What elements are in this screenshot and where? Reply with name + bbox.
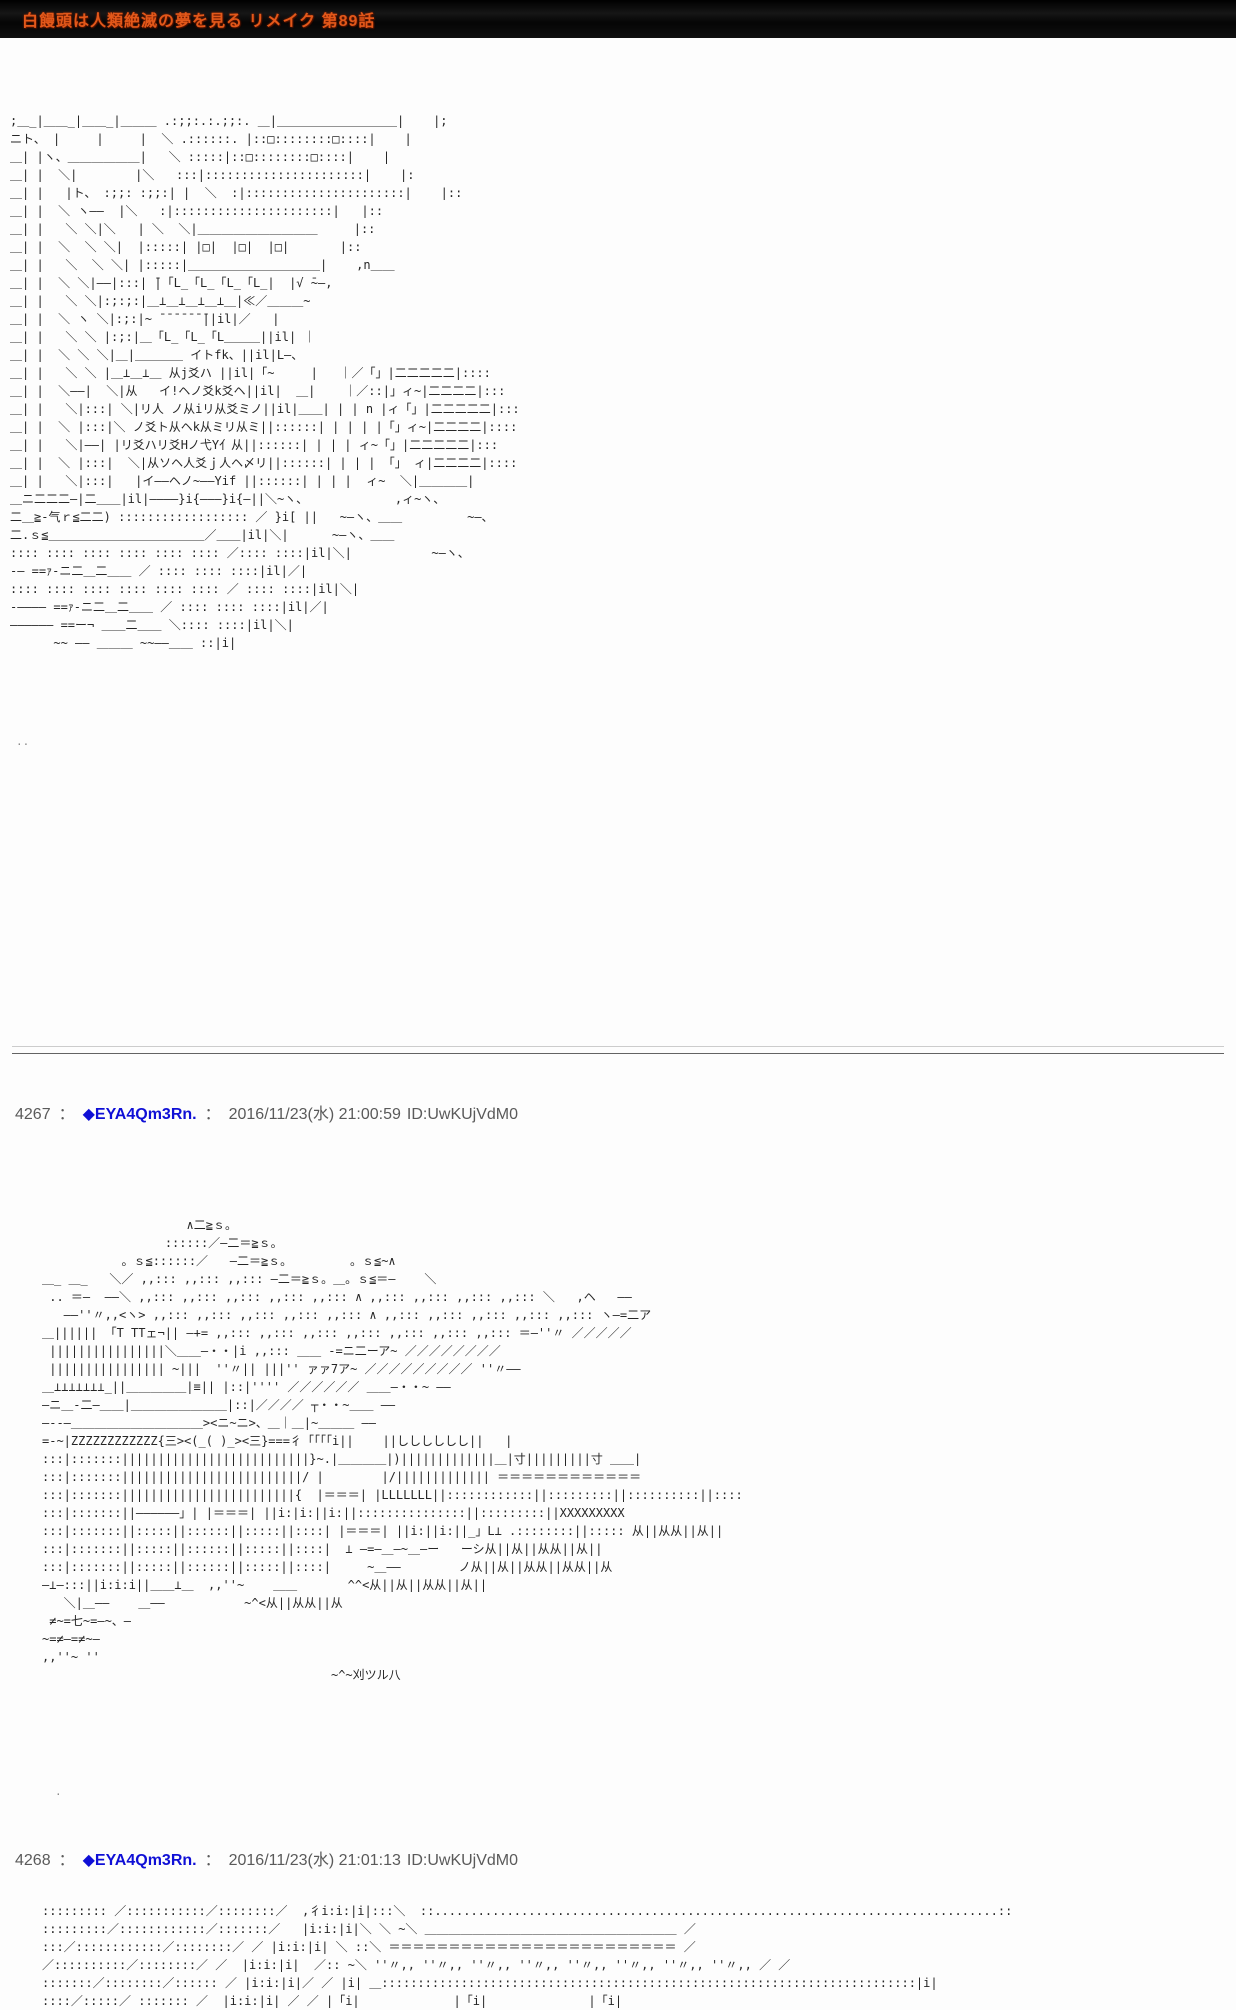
separator: ： (59, 1106, 75, 1123)
post-divider (12, 1046, 1224, 1054)
ascii-art-scene-road: ::::::::: ／:::::::::::／::::::::／ ,彳i:i:|… (42, 1902, 1012, 2010)
separator: ： (205, 1852, 221, 1869)
post-header-4268: 4268：◆EYA4Qm3Rn.：2016/11/23(水) 21:01:13I… (15, 1846, 518, 1870)
post-id: ID:UwKUjVdM0 (407, 1106, 518, 1123)
post-author-link[interactable]: ◆EYA4Qm3Rn. (83, 1852, 197, 1869)
stray-dots: .. (16, 736, 29, 747)
post-id: ID:UwKUjVdM0 (407, 1852, 518, 1869)
post-datetime: 2016/11/23(水) 21:01:13 (229, 1852, 401, 1869)
thread-title-bar: 白饅頭は人類絶滅の夢を見る リメイク 第89話 (0, 0, 1236, 38)
post-number: 4268 (15, 1852, 51, 1869)
post-number: 4267 (15, 1106, 51, 1123)
separator: ： (59, 1852, 75, 1869)
post-datetime: 2016/11/23(水) 21:00:59 (229, 1106, 401, 1123)
stray-dot: . (55, 1786, 62, 1797)
ascii-art-scene-city: ;＿_|＿＿_|＿＿_|＿＿＿ .:;;:.:.;;:. ＿|＿＿＿＿＿＿＿＿＿… (10, 112, 520, 652)
ascii-art-scene-landscape: ∧二≧ｓ。 ::::::／–二＝≧ｓ。 。ｓ≦::::::／ –二＝≧ｓ。 。ｓ… (42, 1216, 743, 1684)
separator: ： (205, 1106, 221, 1123)
thread-title: 白饅頭は人類絶滅の夢を見る リメイク 第89話 (22, 7, 375, 31)
post-header-4267: 4267：◆EYA4Qm3Rn.：2016/11/23(水) 21:00:59I… (15, 1100, 518, 1124)
post-author-link[interactable]: ◆EYA4Qm3Rn. (83, 1106, 197, 1123)
